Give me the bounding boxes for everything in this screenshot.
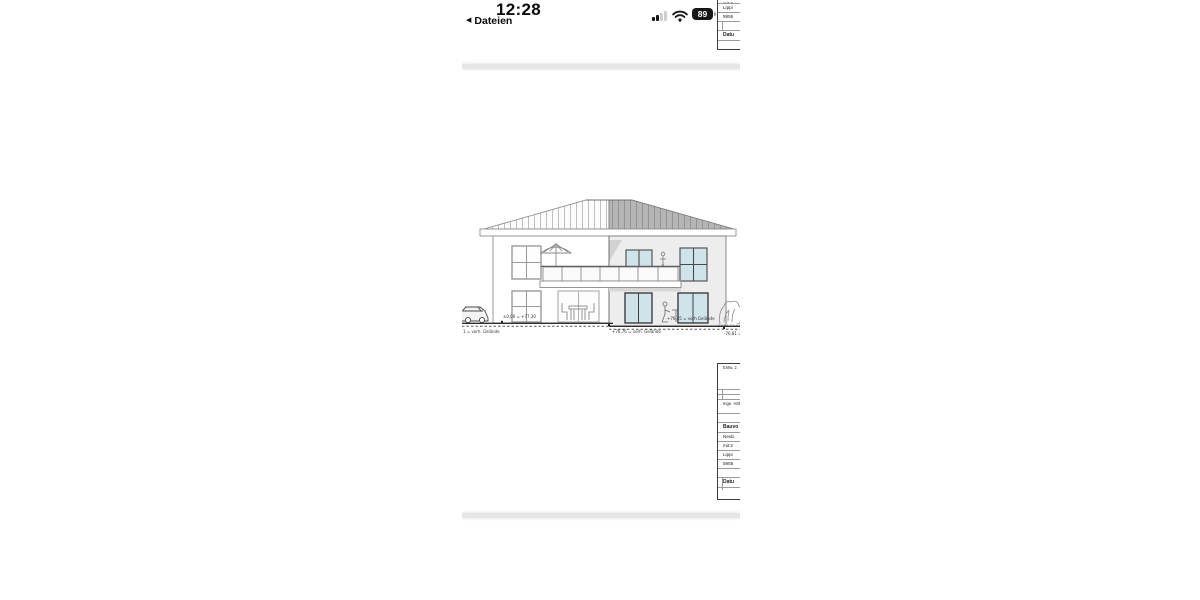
title-block-row <box>718 41 740 50</box>
upper-right-window-b <box>680 248 707 281</box>
title-block-row: Entw. J. <box>718 364 740 390</box>
car-sketch <box>462 307 488 323</box>
title-block-row: 5955 <box>718 13 740 22</box>
annotation-ground-right: -76,81 = <box>724 331 740 336</box>
hip-roof <box>484 200 734 229</box>
house-elevation-drawing: ±0,00 = +77,30 1 = vorh. Gelände +76,76 … <box>462 0 740 600</box>
balcony-shadow <box>609 288 681 292</box>
pdf-viewer-screen[interactable]: 12:28 ◀ Dateien 89 <box>462 0 740 600</box>
title-block-divider <box>722 22 723 31</box>
title-block-row: Lippi <box>718 4 740 13</box>
annotation-ground-center: +76,76 = vorh. Gelände <box>612 329 661 334</box>
balcony-railing <box>541 266 680 281</box>
title-block-row: mit 2 <box>718 442 740 451</box>
title-block-row: Datu <box>718 31 740 41</box>
sliding-door <box>625 293 652 323</box>
upper-left-window <box>512 246 541 279</box>
title-block-divider <box>722 477 723 490</box>
title-block-row: 5955 <box>718 460 740 469</box>
title-block-row: Inge. Höhe <box>718 400 740 414</box>
title-block-divider <box>722 390 723 400</box>
terrace-door <box>558 291 599 322</box>
title-block-main: Entw. J. Inge. Höhe Bauvo Neub. mit 2 Li… <box>717 363 740 500</box>
annotation-left-level: ±0,00 = +77,30 <box>503 314 536 319</box>
eave-fascia <box>480 229 736 236</box>
title-block-row: Lippi <box>718 451 740 460</box>
title-block-row: Neub. <box>718 433 740 442</box>
annotation-right-level: +76,45 = vorh.Gelände <box>667 316 715 321</box>
balcony-slab <box>540 281 681 288</box>
annotation-ground-left: 1 = vorh. Gelände <box>463 329 500 334</box>
title-block-page1-fragment: mit 2 Lippi 5955 Datu <box>717 0 740 50</box>
title-block-row <box>718 414 740 423</box>
desktop-background: 12:28 ◀ Dateien 89 <box>0 0 1200 600</box>
title-block-row: Bauvo <box>718 423 740 433</box>
